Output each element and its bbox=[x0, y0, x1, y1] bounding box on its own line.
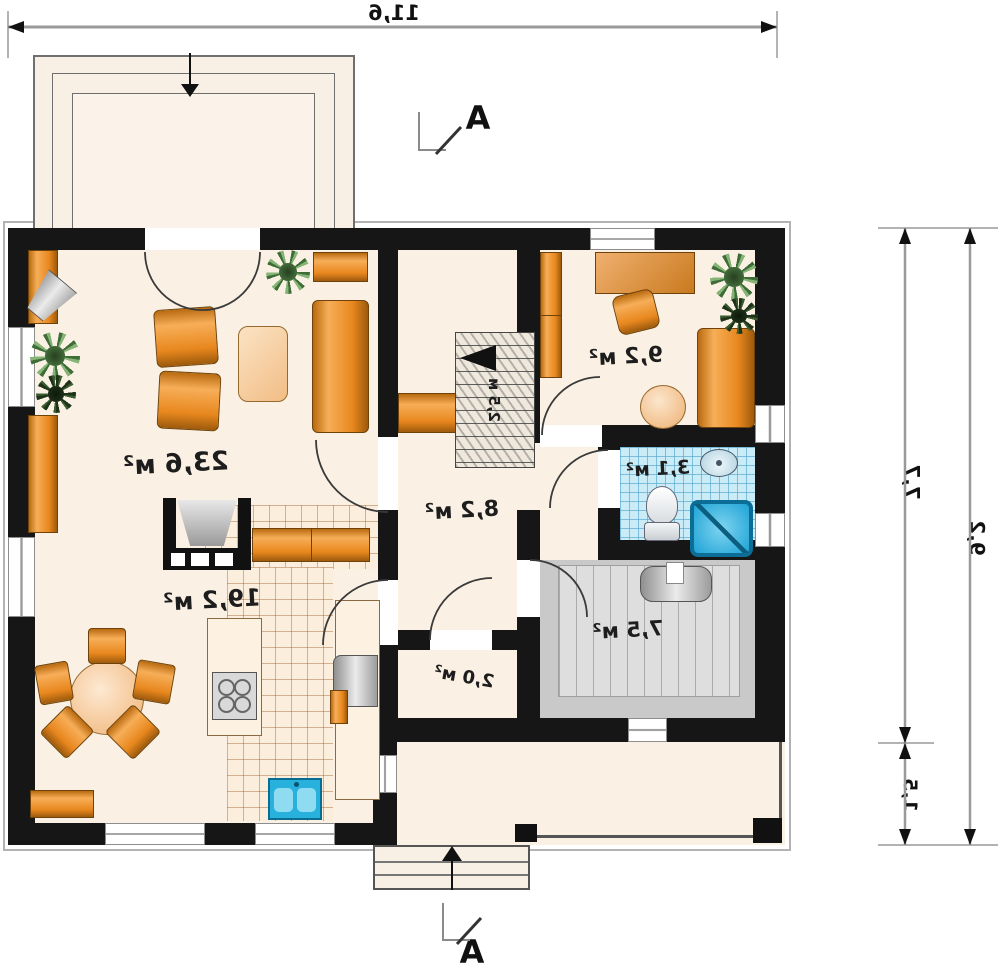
section-marker-top: A bbox=[466, 99, 491, 137]
plant-icon bbox=[36, 375, 76, 413]
cabinet-top bbox=[313, 252, 368, 282]
dim-width-top: 11,6 bbox=[368, 1, 420, 25]
sideboard-bottom bbox=[30, 790, 94, 818]
stove bbox=[212, 672, 257, 720]
window-dining bbox=[105, 823, 205, 845]
room-label-office: 9,2 м² bbox=[588, 343, 663, 372]
stairs-arrow-icon bbox=[460, 345, 496, 371]
living-door-opening bbox=[378, 437, 398, 510]
shower bbox=[690, 500, 753, 557]
dining-chair bbox=[132, 659, 176, 705]
plant-icon bbox=[720, 298, 758, 334]
dim-height-upper: 7,7 bbox=[900, 464, 924, 499]
room-label-living: 23,6 м² bbox=[122, 446, 229, 481]
terrace-edge-bottom bbox=[517, 835, 782, 838]
window-left-1 bbox=[8, 327, 35, 407]
boiler-notch bbox=[666, 562, 684, 584]
terrace-post-left bbox=[515, 824, 537, 842]
terrace-door-opening bbox=[628, 718, 667, 742]
kitchen-sink bbox=[268, 778, 322, 820]
sofa-living bbox=[312, 300, 369, 433]
dining-chair bbox=[88, 628, 126, 664]
floor-plan: 23,6 м² 19,2 м² 8,2 м² 9,2 м² 3,1 м² 7,5… bbox=[0, 0, 1000, 975]
closet-door-opening bbox=[430, 630, 492, 650]
kitchen-door-opening bbox=[378, 580, 398, 645]
sofa-office bbox=[697, 328, 755, 428]
dining-chair bbox=[34, 660, 74, 705]
window-bathroom bbox=[755, 405, 785, 443]
office-door-opening bbox=[540, 425, 602, 447]
dim-height-lower: 1,5 bbox=[899, 778, 921, 812]
room-label-utility: 7,5 м² bbox=[592, 616, 664, 644]
office-wardrobe bbox=[540, 252, 562, 378]
plant-icon bbox=[30, 332, 80, 380]
utility-door-opening bbox=[517, 560, 540, 617]
armchair bbox=[153, 306, 219, 368]
cabinet-left-2 bbox=[28, 415, 58, 533]
terrace-post-right bbox=[753, 818, 782, 843]
hall-cabinet bbox=[398, 393, 457, 433]
front-door-opening bbox=[145, 228, 260, 250]
entry-arrow-stem bbox=[451, 860, 453, 890]
room-label-hall: 8,2 м² bbox=[424, 497, 499, 526]
room-label-bathroom: 3,1 м² bbox=[625, 456, 690, 481]
bathroom-sink bbox=[700, 449, 738, 477]
wall-right bbox=[755, 228, 785, 742]
window-utility bbox=[755, 513, 785, 547]
bathroom-door-opening bbox=[598, 450, 620, 508]
pouf bbox=[640, 385, 686, 429]
coffee-table bbox=[238, 326, 288, 402]
window-office bbox=[590, 228, 655, 250]
section-marker-bottom: A bbox=[460, 933, 485, 971]
armchair bbox=[157, 370, 222, 431]
dim-height-total: 9,2 bbox=[965, 520, 989, 555]
plant-icon bbox=[710, 253, 758, 301]
room-label-kitchen: 19,2 м² bbox=[162, 583, 261, 616]
porch-entry-arrow-stem bbox=[189, 53, 191, 86]
wall-bottom-right bbox=[373, 718, 785, 742]
kitchen-cabinet-small bbox=[330, 690, 348, 724]
fireplace bbox=[163, 498, 251, 570]
kitchen-bench bbox=[252, 528, 370, 562]
plant-icon bbox=[266, 250, 310, 294]
window-left-2 bbox=[8, 537, 35, 617]
toilet bbox=[643, 486, 679, 542]
desk bbox=[595, 252, 695, 294]
porch-inner bbox=[72, 93, 315, 232]
entry-arrow-icon bbox=[442, 846, 462, 861]
stairs-width-label: 2,5 м bbox=[485, 378, 503, 422]
porch-entry-arrow-icon bbox=[181, 84, 199, 97]
wall-top bbox=[8, 228, 785, 250]
window-kitchen bbox=[255, 823, 335, 845]
